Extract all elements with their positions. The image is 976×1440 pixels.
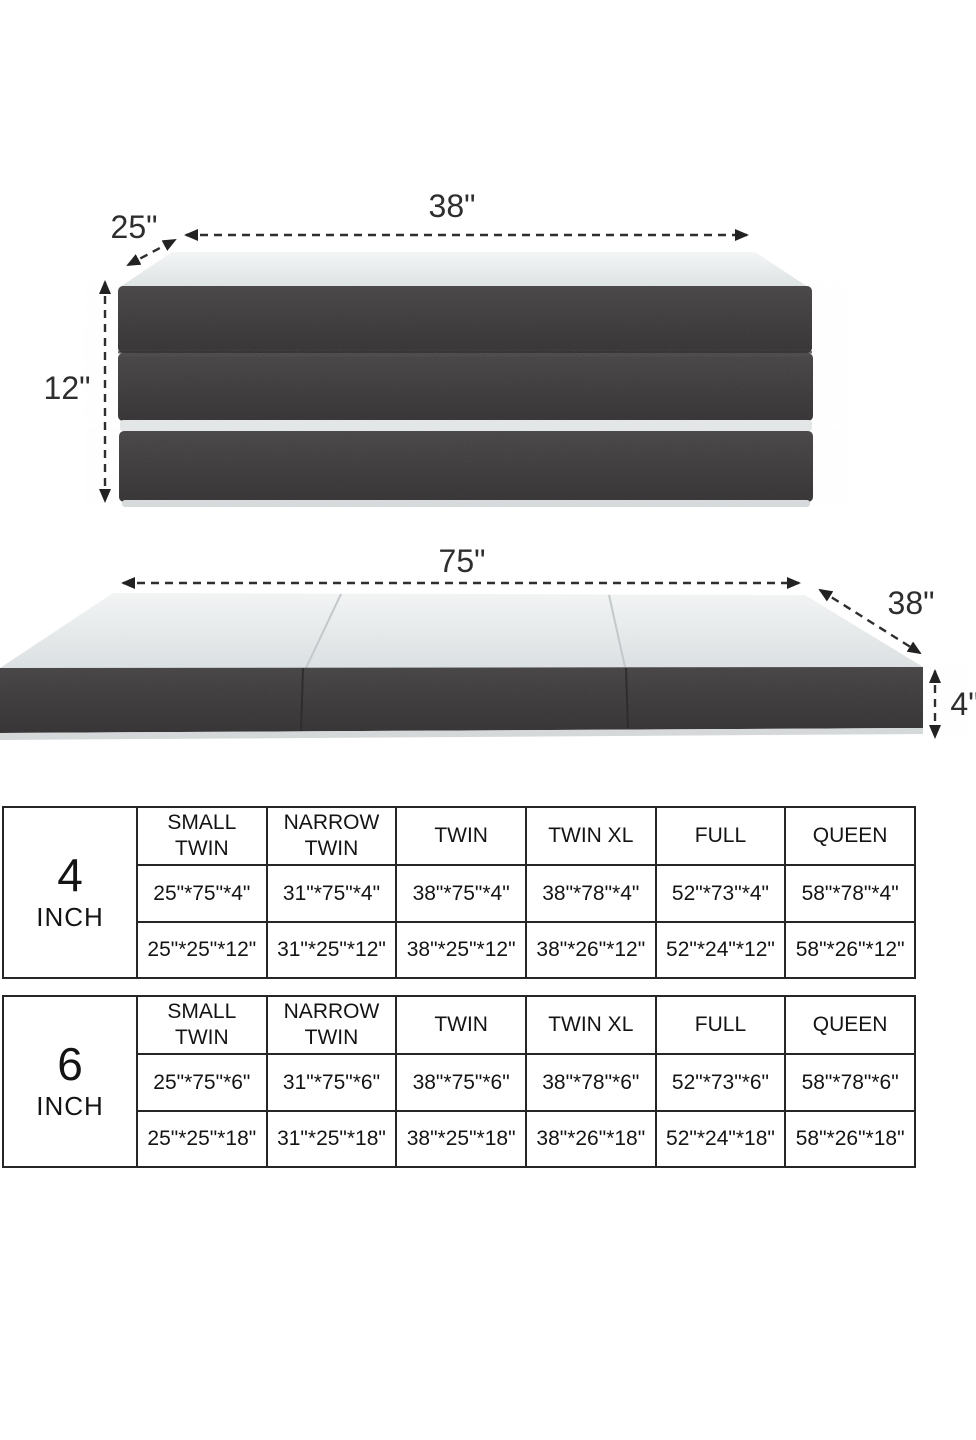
thickness-label-cell: 4 INCH — [3, 807, 137, 978]
unfolded-size-cell: 31"*75"*6" — [267, 1054, 397, 1111]
column-header: NARROW TWIN — [267, 996, 397, 1054]
column-header: FULL — [656, 807, 786, 865]
column-header: FULL — [656, 996, 786, 1054]
column-header: QUEEN — [785, 996, 915, 1054]
folded-width-arrow: 38" — [186, 188, 747, 235]
column-header: TWIN — [396, 996, 526, 1054]
unfolded-size-cell: 38"*78"*6" — [526, 1054, 656, 1111]
thickness-value: 4 — [4, 851, 136, 899]
folded-size-cell: 38"*25"*18" — [396, 1111, 526, 1167]
folded-depth-label: 25" — [111, 209, 158, 245]
unfolded-height-label: 4" — [950, 686, 976, 722]
unfolded-top-surface — [0, 593, 923, 668]
size-table-6-inch: 6 INCH SMALL TWIN NARROW TWIN TWIN TWIN … — [2, 995, 916, 1168]
fabric-texture — [118, 286, 813, 502]
product-dimensions-image: 38" 25" 12" — [0, 0, 976, 1440]
unfolded-size-cell: 31"*75"*4" — [267, 865, 397, 922]
folded-height-arrow: 12" — [44, 282, 105, 501]
unfolded-size-cell: 38"*75"*6" — [396, 1054, 526, 1111]
fabric-texture — [0, 667, 923, 733]
unfolded-height-arrow: 4" — [935, 671, 976, 737]
column-header: QUEEN — [785, 807, 915, 865]
unfolded-size-cell: 25"*75"*4" — [137, 865, 267, 922]
folded-mattress-diagram: 38" 25" 12" — [0, 0, 976, 530]
column-header: TWIN XL — [526, 996, 656, 1054]
white-liner-band — [120, 420, 812, 431]
column-header: TWIN XL — [526, 807, 656, 865]
column-header: SMALL TWIN — [137, 996, 267, 1054]
thickness-label-cell: 6 INCH — [3, 996, 137, 1167]
folded-size-cell: 38"*25"*12" — [396, 922, 526, 978]
column-header: TWIN — [396, 807, 526, 865]
unfolded-length-label: 75" — [439, 543, 486, 579]
folded-height-label: 12" — [44, 370, 91, 406]
thickness-value: 6 — [4, 1040, 136, 1088]
thickness-unit: INCH — [4, 1091, 136, 1123]
unfolded-width-label: 38" — [888, 585, 935, 621]
folded-size-cell: 58"*26"*18" — [785, 1111, 915, 1167]
unfolded-mattress-diagram: 75" 38" 4" — [0, 530, 976, 780]
unfolded-size-cell: 38"*78"*4" — [526, 865, 656, 922]
folded-size-cell: 31"*25"*18" — [267, 1111, 397, 1167]
thickness-unit: INCH — [4, 902, 136, 934]
folded-width-label: 38" — [429, 188, 476, 224]
column-header: NARROW TWIN — [267, 807, 397, 865]
folded-size-cell: 38"*26"*12" — [526, 922, 656, 978]
unfolded-size-cell: 52"*73"*6" — [656, 1054, 786, 1111]
folded-size-cell: 52"*24"*12" — [656, 922, 786, 978]
unfolded-size-cell: 52"*73"*4" — [656, 865, 786, 922]
folded-top-surface — [120, 252, 808, 287]
folded-size-cell: 25"*25"*12" — [137, 922, 267, 978]
unfolded-size-cell: 58"*78"*4" — [785, 865, 915, 922]
unfolded-size-cell: 58"*78"*6" — [785, 1054, 915, 1111]
unfolded-size-cell: 38"*75"*4" — [396, 865, 526, 922]
folded-size-cell: 25"*25"*18" — [137, 1111, 267, 1167]
column-header: SMALL TWIN — [137, 807, 267, 865]
folded-size-cell: 58"*26"*12" — [785, 922, 915, 978]
size-table-4-inch: 4 INCH SMALL TWIN NARROW TWIN TWIN TWIN … — [2, 806, 916, 979]
folded-size-cell: 31"*25"*12" — [267, 922, 397, 978]
unfolded-size-cell: 25"*75"*6" — [137, 1054, 267, 1111]
folded-size-cell: 38"*26"*18" — [526, 1111, 656, 1167]
unfolded-length-arrow: 75" — [123, 543, 799, 583]
folded-size-cell: 52"*24"*18" — [656, 1111, 786, 1167]
